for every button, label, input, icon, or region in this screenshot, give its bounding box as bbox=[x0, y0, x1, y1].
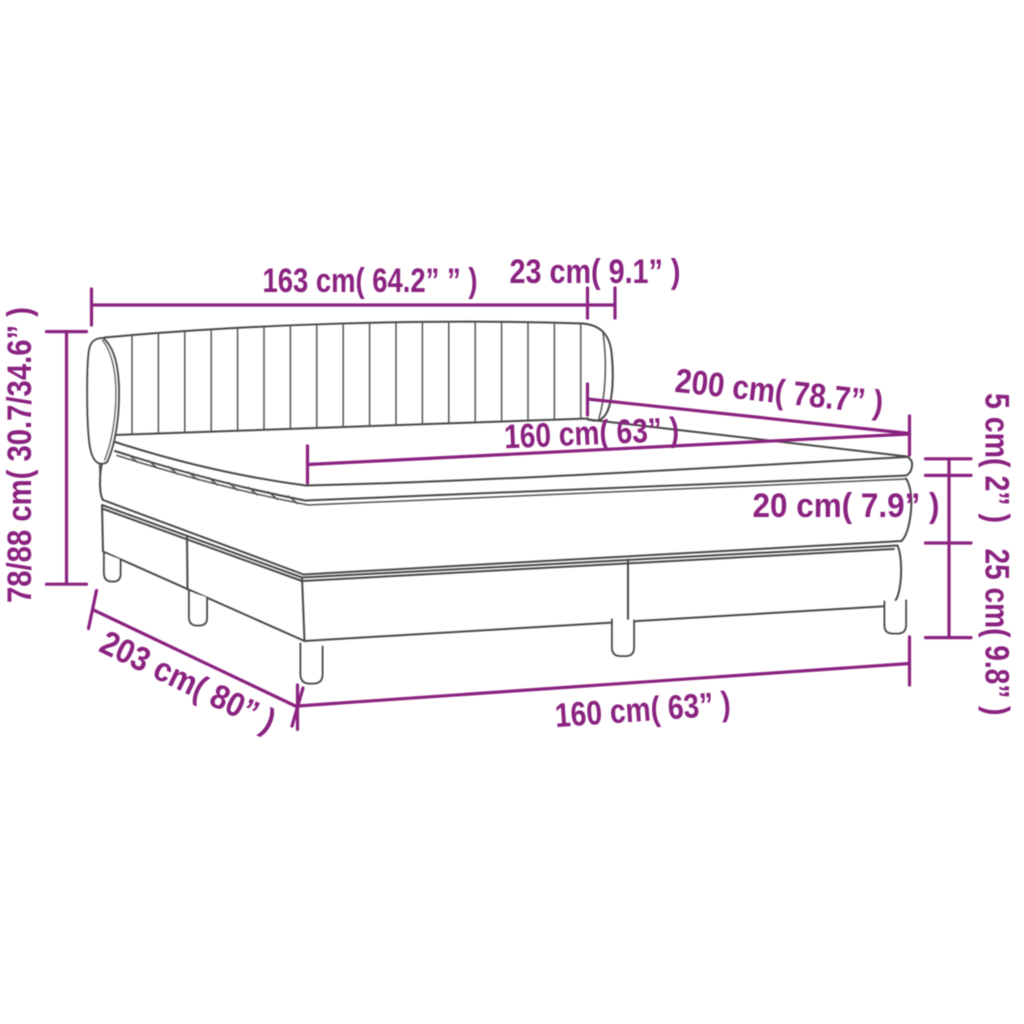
svg-text:23 cm( 9.1” ): 23 cm( 9.1” ) bbox=[510, 253, 681, 291]
svg-text:163 cm( 64.2” ” ): 163 cm( 64.2” ” ) bbox=[263, 262, 478, 300]
svg-text:5 cm( 2” ): 5 cm( 2” ) bbox=[978, 393, 1016, 523]
svg-text:25 cm( 9.8” ): 25 cm( 9.8” ) bbox=[978, 549, 1016, 716]
svg-text:78/88 cm( 30.7/34.6” ): 78/88 cm( 30.7/34.6” ) bbox=[1, 307, 39, 603]
svg-text:160 cm( 63” ): 160 cm( 63” ) bbox=[503, 411, 679, 457]
svg-text:20 cm( 7.9” ): 20 cm( 7.9” ) bbox=[753, 487, 940, 525]
